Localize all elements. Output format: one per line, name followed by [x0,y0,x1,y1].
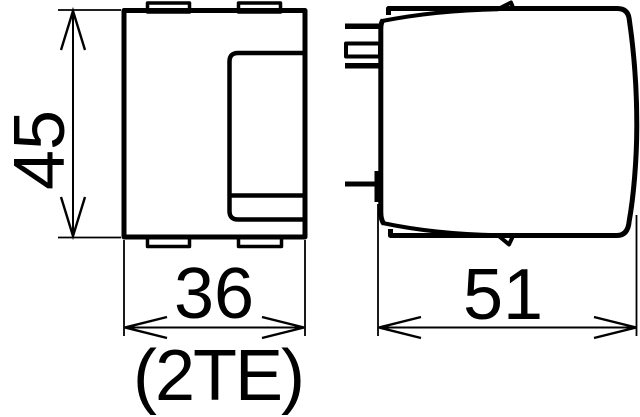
dim-depth-value: 51 [463,255,543,335]
dim-width-value: 36 [174,254,254,334]
drawing-canvas: 45 36 (2TE) 51 [0,0,640,417]
dim-height-value: 45 [0,110,80,190]
side-top-clip [382,3,514,22]
side-terminal-bar-mid [345,63,381,69]
dim-width: 36 (2TE) [124,240,305,416]
front-body [124,11,305,238]
side-rail-rib [375,171,382,202]
side-terminal-box [346,44,380,57]
dim-width-units: (2TE) [133,336,303,416]
side-body [389,9,637,236]
side-view [345,3,637,245]
side-terminal-bar-top [345,24,381,30]
dim-depth: 51 [378,204,637,338]
dim-height: 45 [0,10,121,238]
dimension-drawing: 45 36 (2TE) 51 [0,0,640,417]
side-terminal-bar-bottom [345,182,379,187]
front-view [124,3,305,247]
